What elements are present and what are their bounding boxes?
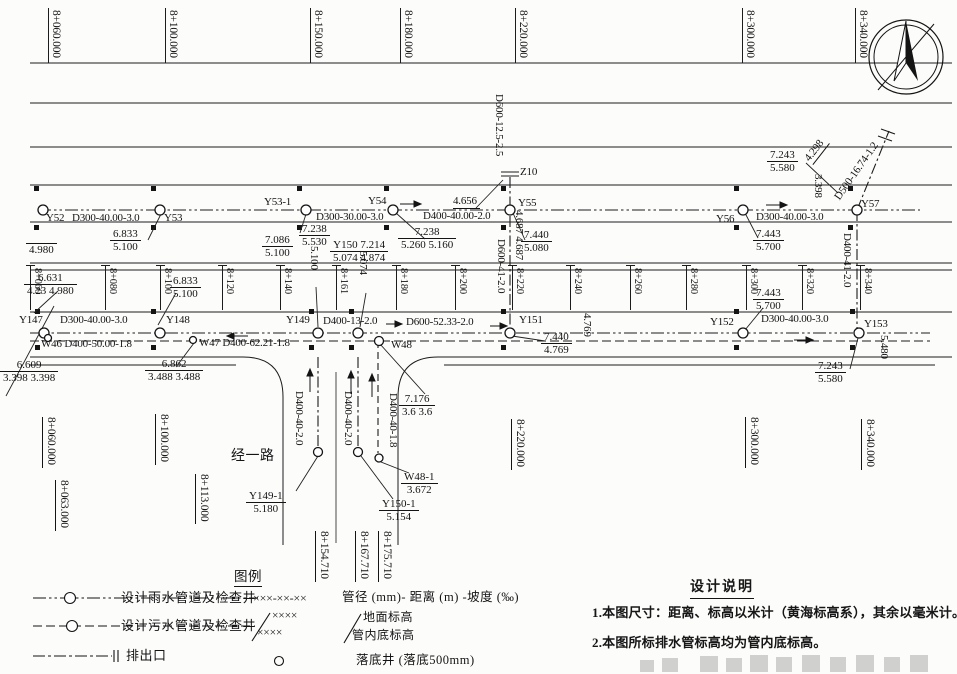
station-label-mid: 8+220 (514, 268, 525, 294)
road-name: 经一路 (231, 450, 275, 464)
elev-y56-invert: 5.700 (753, 241, 784, 253)
outfall-label-z10: Z10 (520, 167, 537, 178)
elev-mid-a-invert: 4.23 4.980 (24, 285, 77, 297)
pipe-label-leg-1: D400-40-2.0 (293, 391, 304, 445)
elev-y153-ground: 7.243 (815, 360, 846, 373)
elev-3398-vert: 3.398 (812, 174, 823, 198)
pipe-label-leg-3: D400-40-1.8 (387, 393, 398, 447)
elev-y150-invert: 5.074 4.874 (330, 252, 388, 264)
elev-mid-b-ground: 6.833 (170, 275, 201, 288)
pipe-label-y56-y57: D300-40.00-3.0 (756, 212, 823, 223)
station-tick-bar (566, 265, 575, 266)
elev-5480-vert: 5.480 (878, 335, 889, 359)
elev-y52: 4.980 (26, 241, 57, 256)
well-w48-1-ground: W48-1 (401, 471, 438, 484)
elev-y152: 7.4435.700 (753, 287, 784, 313)
elev-y531-b-invert: 5.530 (299, 236, 330, 248)
station-tick-bar (276, 265, 285, 266)
elev-y57: 7.2435.580 (767, 149, 798, 175)
pipe-label-y531-y54: D300-30.00-3.0 (316, 212, 383, 223)
pipe-label-d600-z10: D600-12.5-2.5 (493, 94, 504, 156)
manhole-label-y149: Y149 (286, 315, 310, 326)
elev-y150: Y150 7.2145.074 4.874 (330, 239, 388, 265)
elev-y531-b: 7.2385.530 (299, 223, 330, 249)
pipe-label-y152-y153: D300-40.00-3.0 (761, 314, 828, 325)
station-label-bottom: 8+220.000 (512, 419, 526, 470)
elev-y54: 7.2385.260 5.160 (398, 226, 456, 252)
well-y149-1-invert: 5.180 (246, 503, 286, 515)
manhole-label-y151: Y151 (519, 315, 543, 326)
station-label-bottom: 8+113.000 (196, 474, 210, 524)
drainage-plan-sheet: 8+060.0008+100.0008+150.0008+180.0008+22… (0, 0, 957, 674)
station-label-bottom: 8+167.710 (356, 531, 370, 582)
elev-y54-invert: 5.260 5.160 (398, 239, 456, 251)
manhole-label-y57: Y57 (861, 199, 879, 210)
elev-w48: 7.1763.6 3.6 (399, 393, 435, 419)
elev-y57-ground: 7.243 (767, 149, 798, 162)
manhole-label-y53-1: Y53-1 (264, 197, 291, 208)
elev-y57-invert: 5.580 (767, 162, 798, 174)
elev-y152-invert: 5.700 (753, 300, 784, 312)
station-tick-bar (856, 265, 865, 266)
annotation-layer: 8+060.0008+100.0008+150.0008+180.0008+22… (0, 0, 957, 674)
station-label-top: 8+150.000 (312, 10, 324, 58)
elev-y151-invert: 4.769 (541, 344, 572, 356)
station-tick-bar (156, 265, 165, 266)
manhole-label-y147: Y147 (19, 315, 43, 326)
elev-y55: 7.4405.080 (521, 229, 552, 255)
station-label-mid: 8+140 (282, 268, 293, 294)
station-tick-bar (798, 265, 807, 266)
manhole-label-y52: Y52 (46, 213, 64, 224)
station-tick-bar (101, 265, 110, 266)
elev-w46-invert: 3.398 3.398 (0, 372, 58, 384)
elev-y55-invert: 5.080 (521, 242, 552, 254)
well-y150-1-ground: Y150-1 (379, 498, 419, 511)
station-tick-bar (508, 265, 517, 266)
manhole-label-y148: Y148 (166, 315, 190, 326)
elev-y52-invert: 4.980 (26, 244, 57, 256)
pipe-label-y54-y55: D400-40.00-2.0 (423, 211, 490, 222)
station-label-bottom: 8+154.710 (316, 531, 330, 582)
elev-w47-invert: 3.488 3.488 (145, 371, 203, 383)
station-tick-bar (332, 265, 341, 266)
elev-y531-b-ground: 7.238 (299, 223, 330, 236)
station-label-mid: 8+240 (572, 268, 583, 294)
elev-y53-ground: 6.833 (110, 228, 141, 241)
pipe-label-y52-y53: D300-40.00-3.0 (72, 213, 139, 224)
manhole-label-y56: Y56 (716, 214, 734, 225)
pipe-label-w47: W47 D400-62.21-1.8 (199, 338, 290, 349)
manhole-label-y53: Y53 (164, 213, 182, 224)
station-label-top: 8+340.000 (857, 10, 869, 58)
station-label-bottom: 8+060.000 (43, 417, 57, 468)
elev-y531-a: 7.0865.100 (262, 234, 293, 260)
station-tick-bar (626, 265, 635, 266)
well-y150-1: Y150-15.154 (379, 498, 419, 524)
well-y150-1-invert: 5.154 (379, 511, 419, 523)
station-label-mid: 8+260 (632, 268, 643, 294)
elev-y153: 7.2435.580 (815, 360, 846, 386)
station-tick-bar (392, 265, 401, 266)
pipe-label-y149-y150: D400-13-2.0 (323, 316, 377, 327)
pipe-label-d500-outfall: D500-16.74-1.2 (833, 141, 881, 203)
pipe-label-d400-y57-y153: D400-41-2.0 (841, 233, 852, 287)
station-label-top: 8+100.000 (167, 10, 179, 58)
elev-w48-ground: 7.176 (399, 393, 435, 406)
elev-y151-ground: 7.440 (541, 331, 572, 344)
station-tick-bar (742, 265, 751, 266)
elev-mid-b: 6.8335.100 (170, 275, 201, 301)
elev-y54-ground: 7.238 (398, 226, 456, 239)
elev-y153-invert: 5.580 (815, 373, 846, 385)
elev-y55-ground: 7.440 (521, 229, 552, 242)
manhole-label-y153: Y153 (864, 319, 888, 330)
distance-4298: 4.298 (803, 136, 830, 165)
station-label-mid: 8+180 (398, 268, 409, 294)
station-tick-bar (26, 265, 35, 266)
pipe-label-w46: W46 D400-50.00-1.8 (41, 339, 132, 350)
station-label-mid: 8+120 (224, 268, 235, 294)
station-label-bottom: 8+100.000 (156, 414, 170, 465)
station-label-top: 8+300.000 (744, 10, 756, 58)
station-label-mid: 8+161 (338, 268, 349, 294)
station-tick-bar (218, 265, 227, 266)
station-label-bottom: 8+300.000 (746, 417, 760, 468)
elev-w46-ground: 6.609 (0, 359, 58, 372)
station-tick-bar (682, 265, 691, 266)
pipe-label-d600-y55-y151: D600-41-2.0 (495, 239, 506, 293)
elev-w46: 6.6093.398 3.398 (0, 359, 58, 385)
manhole-label-y54: Y54 (368, 196, 386, 207)
elev-y150-ground: Y150 7.214 (330, 239, 388, 252)
manhole-label-w48: W48 (391, 340, 412, 351)
station-label-bottom: 8+063.000 (56, 480, 70, 531)
elev-w48-invert: 3.6 3.6 (399, 406, 435, 418)
pipe-label-y147-y148: D300-40.00-3.0 (60, 315, 127, 326)
well-y149-1: Y149-15.180 (246, 490, 286, 516)
elev-mid-a-ground: 6.631 (24, 272, 77, 285)
well-w48-1: W48-13.672 (401, 471, 438, 497)
elev-y151: 7.4404.769 (541, 331, 572, 357)
station-label-mid: 8+320 (804, 268, 815, 294)
elev-y531-a-invert: 5.100 (262, 247, 293, 259)
station-label-top: 8+220.000 (517, 10, 529, 58)
elev-w47: 6.8623.488 3.488 (145, 358, 203, 384)
elev-mid-a: 6.6314.23 4.980 (24, 272, 77, 298)
station-label-mid: 8+340 (862, 268, 873, 294)
pipe-label-leg-2: D400-40-2.0 (342, 391, 353, 445)
elev-y531-a-ground: 7.086 (262, 234, 293, 247)
elev-y53-invert: 5.100 (110, 241, 141, 253)
elev-5100-vert: 5.100 (308, 246, 319, 270)
elev-y56-ground: 7.443 (753, 228, 784, 241)
station-label-mid: 8+280 (688, 268, 699, 294)
elev-w47-ground: 6.862 (145, 358, 203, 371)
station-label-top: 8+180.000 (402, 10, 414, 58)
station-label-mid: 8+080 (107, 268, 118, 294)
station-label-bottom: 8+340.000 (862, 419, 876, 470)
manhole-label-y152: Y152 (710, 317, 734, 328)
well-y149-1-ground: Y149-1 (246, 490, 286, 503)
elev-4769-vert: 4.769 (581, 313, 592, 337)
manhole-label-y55: Y55 (518, 198, 536, 209)
elev-y53: 6.8335.100 (110, 228, 141, 254)
station-label-bottom: 8+175.710 (379, 531, 393, 582)
station-label-top: 8+060.000 (50, 10, 62, 58)
elev-y152-ground: 7.443 (753, 287, 784, 300)
distance-z10: 4.656 (453, 196, 480, 209)
station-tick-bar (451, 265, 460, 266)
elev-mid-b-invert: 5.100 (170, 288, 201, 300)
pipe-label-y150-y151: D600-52.33-2.0 (406, 317, 473, 328)
well-w48-1-invert: 3.672 (401, 484, 438, 496)
elev-y56: 7.4435.700 (753, 228, 784, 254)
station-label-mid: 8+200 (457, 268, 468, 294)
